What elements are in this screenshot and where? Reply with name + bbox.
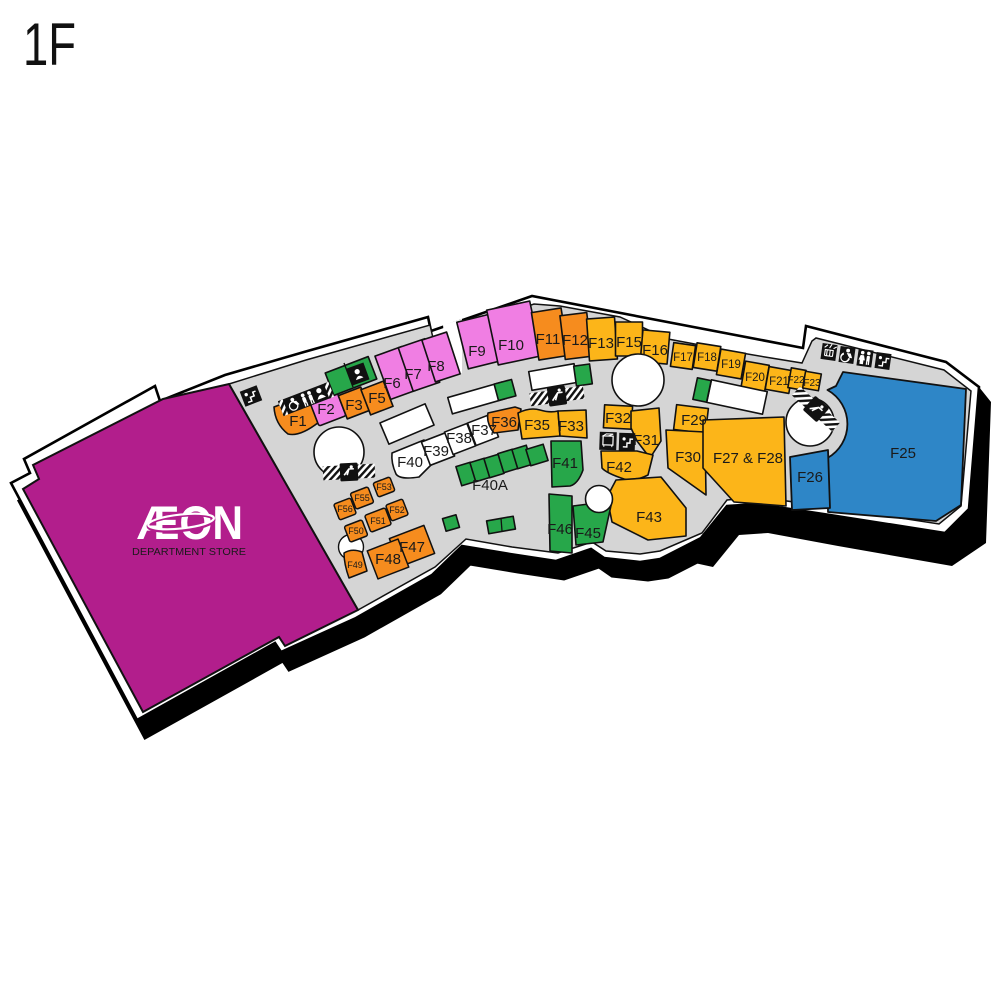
svg-text:F52: F52	[389, 505, 405, 515]
svg-text:F20: F20	[745, 372, 765, 384]
svg-text:F1: F1	[289, 413, 307, 430]
svg-text:F7: F7	[404, 366, 422, 383]
svg-text:F23: F23	[803, 378, 821, 389]
svg-text:F39: F39	[423, 443, 449, 460]
svg-text:1F: 1F	[23, 11, 76, 78]
svg-text:F26: F26	[797, 469, 823, 486]
svg-text:F55: F55	[354, 493, 370, 503]
svg-text:F21: F21	[769, 376, 789, 388]
svg-text:F56: F56	[337, 504, 353, 514]
svg-text:F35: F35	[524, 417, 550, 434]
svg-text:F40: F40	[397, 454, 423, 471]
svg-text:F40A: F40A	[472, 477, 508, 494]
svg-text:F12: F12	[562, 332, 588, 349]
svg-text:F47: F47	[399, 539, 425, 556]
svg-text:F53: F53	[376, 482, 392, 492]
svg-text:F15: F15	[616, 334, 642, 351]
svg-text:F43: F43	[636, 509, 662, 526]
svg-text:F51: F51	[370, 516, 386, 526]
svg-text:F46: F46	[547, 521, 573, 538]
svg-text:F29: F29	[681, 412, 707, 429]
svg-text:F16: F16	[642, 342, 668, 359]
svg-text:F41: F41	[552, 455, 578, 472]
svg-text:F50: F50	[348, 526, 364, 536]
svg-text:F9: F9	[468, 343, 486, 360]
svg-text:F31: F31	[633, 432, 659, 449]
svg-text:F49: F49	[347, 560, 363, 570]
svg-text:F19: F19	[721, 359, 741, 371]
svg-text:F13: F13	[588, 335, 614, 352]
svg-text:F27 & F28: F27 & F28	[713, 450, 783, 467]
svg-text:F18: F18	[697, 352, 717, 364]
svg-text:F30: F30	[675, 449, 701, 466]
svg-text:F3: F3	[345, 397, 363, 414]
svg-text:F10: F10	[498, 337, 524, 354]
svg-text:F5: F5	[368, 390, 386, 407]
svg-text:F8: F8	[427, 358, 445, 375]
svg-text:F2: F2	[317, 401, 335, 418]
svg-text:F11: F11	[536, 331, 561, 348]
svg-text:F48: F48	[375, 551, 401, 568]
svg-text:F6: F6	[383, 375, 401, 392]
svg-text:F32: F32	[605, 410, 631, 427]
svg-text:F38: F38	[446, 430, 472, 447]
svg-text:F25: F25	[890, 445, 916, 462]
svg-text:F42: F42	[606, 459, 632, 476]
svg-text:F37: F37	[471, 422, 497, 439]
svg-text:F33: F33	[558, 418, 584, 435]
svg-text:DEPARTMENT STORE: DEPARTMENT STORE	[132, 546, 246, 558]
svg-text:F17: F17	[673, 352, 693, 364]
svg-text:F45: F45	[575, 525, 601, 542]
